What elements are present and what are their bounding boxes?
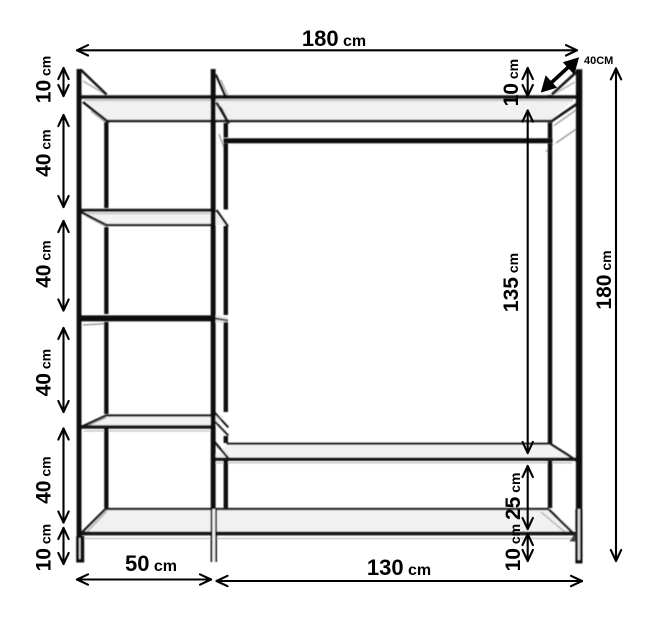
- svg-text:40CM: 40CM: [584, 55, 613, 67]
